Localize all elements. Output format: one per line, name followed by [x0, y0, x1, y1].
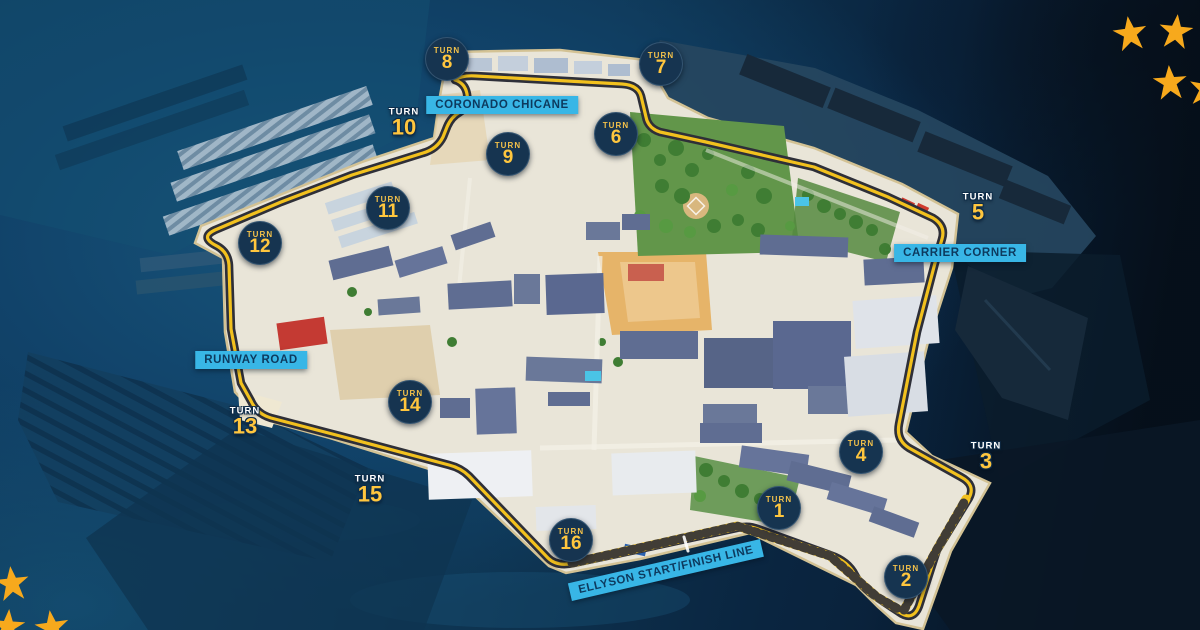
east-inlet	[900, 250, 1200, 630]
label-runway-road: RUNWAY ROAD	[195, 351, 307, 369]
map-artwork	[0, 0, 1200, 630]
label-coronado-chicane: CORONADO CHICANE	[426, 96, 578, 114]
circuit-map: CORONADO CHICANE CARRIER CORNER RUNWAY R…	[0, 0, 1200, 630]
label-carrier-corner: CARRIER CORNER	[894, 244, 1026, 262]
